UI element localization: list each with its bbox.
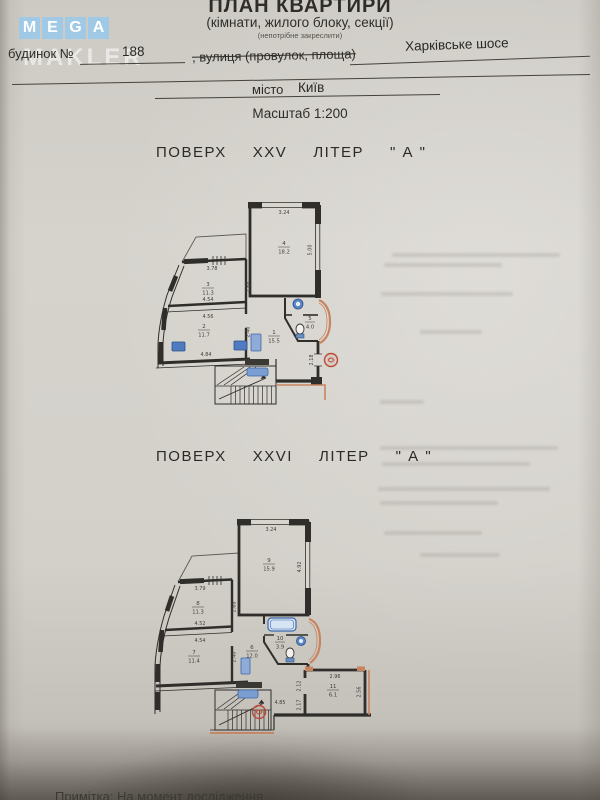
room-area: 4.0: [306, 325, 314, 331]
radiator-icon: [172, 342, 185, 351]
dim-label: 2.18: [309, 355, 315, 366]
dim-label: 3.24: [279, 210, 290, 216]
room-area: 3.9: [276, 645, 284, 651]
page-subtitle: (кімнати, жилого блоку, секції): [0, 15, 600, 30]
dim-label: 2.12: [297, 681, 303, 692]
room-area: 11.4: [188, 659, 200, 665]
appliance-icon: [241, 658, 250, 674]
room-number: 9: [267, 558, 271, 564]
room-number: 1: [272, 330, 275, 336]
street-label: , вулиця (провулок, площа): [192, 46, 356, 64]
dim-label: 2.17: [297, 700, 303, 711]
street-underline: [350, 56, 590, 65]
counter-icon: [236, 682, 262, 688]
appliance-icon: [247, 368, 268, 376]
room-number: 8: [196, 601, 200, 607]
room-number: 5: [308, 316, 311, 322]
dim-label: 4.56: [203, 314, 214, 320]
floor-25-heading: ПОВЕРХ XXV ЛІТЕР " А ": [156, 144, 427, 161]
floor-number: XXVI: [253, 448, 293, 465]
appliance-icon: [251, 334, 261, 351]
dim-label: 4.84: [201, 352, 212, 358]
dim-label: 4.92: [297, 562, 303, 573]
floor-plan-26: 3.24 4.92 9 15.9 2.68 3.79 8 11.3 4.52 4…: [128, 512, 388, 764]
bleedthrough-text: [380, 400, 424, 404]
dim-label: 2.40: [232, 652, 238, 663]
room-number: 10: [277, 636, 284, 642]
liter-word: ЛІТЕР: [313, 144, 364, 161]
room-area: 12.0: [246, 654, 258, 660]
room-area: 11.7: [198, 333, 210, 339]
liter-word: ЛІТЕР: [319, 448, 370, 465]
stamp-icon: [253, 706, 266, 719]
toilet-icon: [286, 648, 294, 658]
bleedthrough-text: [384, 263, 502, 267]
bleedthrough-text: [380, 446, 558, 450]
bleedthrough-text: [381, 292, 513, 296]
room-number: 11: [330, 684, 337, 690]
dim-label: 5.00: [308, 245, 314, 256]
bleedthrough-text: [392, 253, 560, 257]
house-label: будинок №: [8, 46, 74, 61]
room-area: 11.3: [202, 291, 214, 297]
bleedthrough-text: [384, 531, 482, 535]
strike-note: (непотрібне закреслити): [0, 31, 600, 40]
radiator-icon: [234, 341, 247, 350]
counter-icon: [245, 359, 269, 365]
dim-label: 4.52: [195, 621, 206, 627]
scale-label: Масштаб 1:200: [0, 106, 600, 121]
stamp-icon: [325, 354, 338, 367]
room-number: 6: [250, 645, 254, 651]
room-area: 6.1: [329, 693, 337, 699]
house-number: 188: [122, 44, 145, 59]
dim-label: 4.54: [203, 297, 214, 303]
floor-word: ПОВЕРХ: [156, 144, 227, 161]
bleedthrough-text: [378, 487, 550, 491]
city-label: місто: [252, 82, 283, 97]
bleedthrough-text: [420, 330, 482, 334]
street-value: Харківське шосе: [405, 35, 509, 54]
dim-label: 4.54: [195, 638, 206, 644]
city-value: Київ: [298, 80, 324, 95]
floor-number: XXV: [253, 144, 288, 161]
room-number: 3: [206, 282, 209, 288]
appliance-icon: [238, 690, 258, 698]
dim-label: 2.40: [246, 327, 252, 338]
toilet-icon: [296, 324, 304, 334]
room-area: 18.2: [278, 250, 290, 256]
bleedthrough-text: [380, 501, 498, 505]
scanned-floorplan-document: M E G A MAKLER ПЛАН КВАРТИРИ (кімнати, ж…: [0, 0, 600, 800]
room-area: 15.9: [263, 567, 275, 573]
footer-note: Примітка: На момент дослідження: [55, 789, 263, 800]
room-number: 4: [282, 241, 286, 247]
dim-label: 2.96: [330, 674, 341, 680]
liter-value: " А ": [390, 144, 427, 161]
dim-label: 3.24: [266, 527, 277, 533]
dim-label: 2.56: [357, 687, 363, 698]
bleedthrough-text: [420, 553, 500, 557]
room-area: 15.5: [268, 339, 280, 345]
dim-label: 2.68: [246, 282, 252, 293]
room-area: 11.3: [192, 610, 204, 616]
floor-word: ПОВЕРХ: [156, 448, 227, 465]
room-number: 7: [192, 650, 195, 656]
dim-label: 2.68: [232, 602, 238, 613]
bleedthrough-text: [382, 462, 530, 466]
room-number: 2: [202, 324, 205, 330]
dim-label: 3.79: [195, 586, 206, 592]
dim-label: 3.78: [207, 266, 218, 272]
floor-plan-25: 3.24 5.00 4 18.2 2.68 3.78 3 11.3 4.54 4…: [128, 192, 388, 436]
dim-label: 4.85: [275, 700, 286, 706]
